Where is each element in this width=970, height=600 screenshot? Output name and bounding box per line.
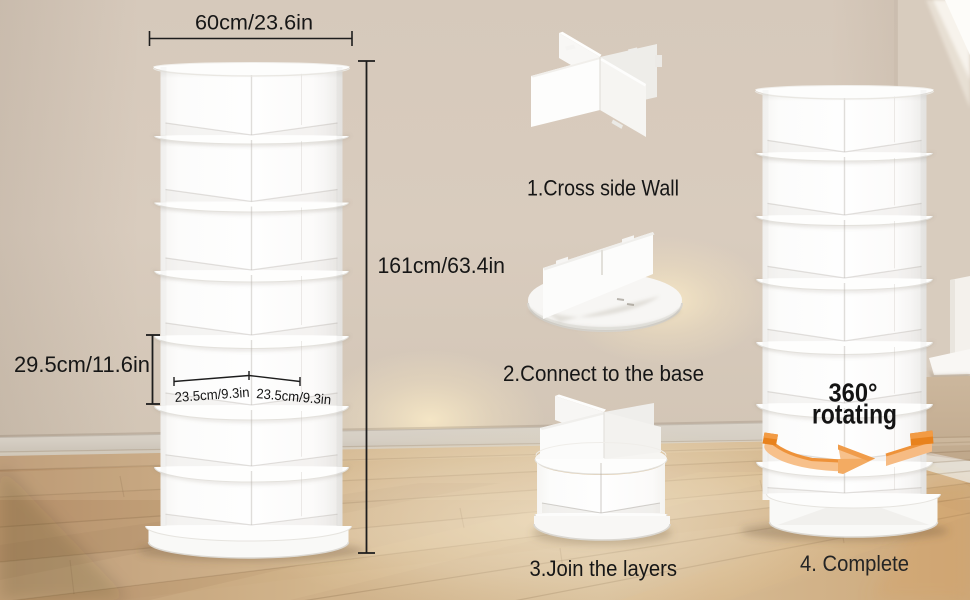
svg-text:1.Cross side Wall: 1.Cross side Wall (527, 176, 679, 201)
svg-text:4. Complete: 4. Complete (800, 551, 909, 576)
svg-text:60cm/23.6in: 60cm/23.6in (195, 11, 313, 35)
svg-text:2.Connect to the base: 2.Connect to the base (503, 361, 704, 386)
svg-text:161cm/63.4in: 161cm/63.4in (378, 253, 506, 278)
svg-text:rotating: rotating (812, 399, 897, 430)
svg-text:29.5cm/11.6in: 29.5cm/11.6in (14, 352, 150, 377)
svg-text:3.Join the layers: 3.Join the layers (530, 556, 678, 581)
